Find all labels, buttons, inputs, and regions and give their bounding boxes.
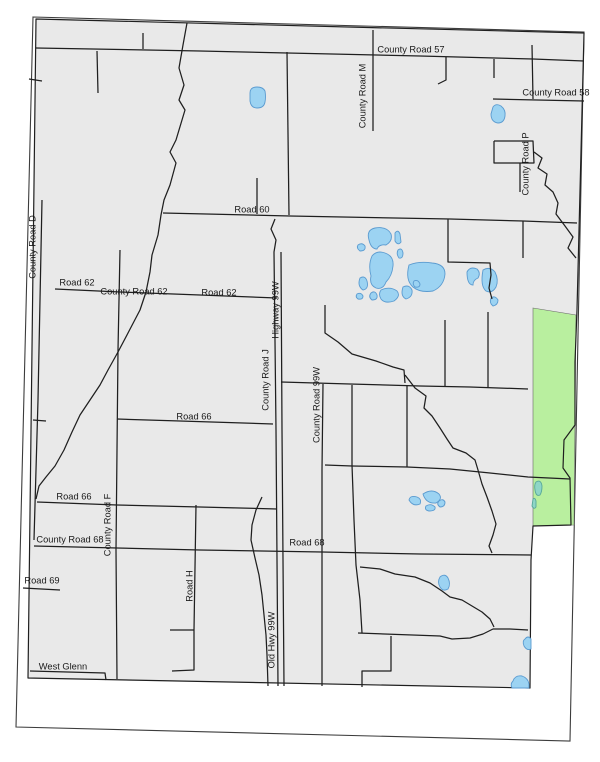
road-label: County Road P [520,132,530,195]
water-body [532,498,536,508]
road-label: County Road 58 [522,87,589,97]
road-label: Road 62 [201,287,236,297]
road-label: Road 66 [56,491,91,501]
road-label: Road 60 [234,204,269,214]
water-body [425,505,435,511]
map-canvas[interactable]: County Road 57County Road MCounty Road 5… [0,0,600,762]
water-body [357,244,365,251]
road-label: County Road M [357,64,367,129]
water-body [356,293,363,299]
water-body [370,292,377,300]
road-label: Road 62 [59,277,94,287]
road-label: County Road D [27,215,37,279]
water-body [408,262,445,291]
water-body [359,277,368,290]
road-label: Road 66 [176,411,211,421]
road-label: County Road 57 [377,44,444,54]
road-label: County Road 68 [36,534,103,544]
road-label: Road 68 [289,537,324,547]
water-body [397,249,403,258]
water-body [438,500,445,507]
road-label: County Road 62 [100,286,167,296]
water-body [250,87,266,108]
road-label: Road 69 [24,575,59,585]
road-label: Highway 99W [270,281,280,339]
water-body [413,280,420,287]
road-label: County Road J [260,349,270,411]
water-body [491,105,505,123]
road-label: Old Hwy 99W [266,611,276,668]
water-body [380,288,399,302]
road-label: County Road 99W [311,367,321,443]
water-body [439,575,450,590]
map-page: County Road 57County Road MCounty Road 5… [0,0,600,762]
water-body [535,481,542,495]
road-label: Road H [184,570,194,602]
road-label: West Glenn [39,661,87,671]
road-label: County Road F [102,493,112,556]
